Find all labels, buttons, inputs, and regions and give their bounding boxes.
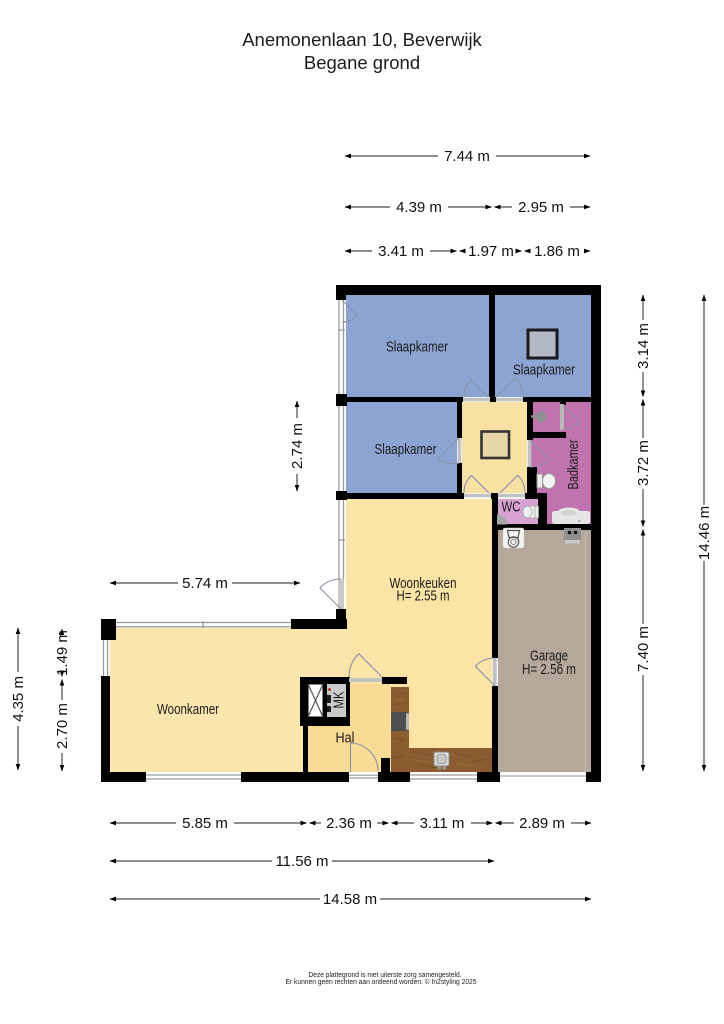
svg-text:Slaapkamer: Slaapkamer (513, 362, 575, 379)
svg-text:Er kunnen geen rechten aan ont: Er kunnen geen rechten aan ontleend word… (286, 978, 477, 986)
svg-text:Begane grond: Begane grond (304, 52, 420, 73)
svg-text:1.97 m: 1.97 m (468, 243, 514, 260)
svg-text:WC: WC (502, 499, 521, 516)
svg-text:H= 2.56 m: H= 2.56 m (522, 661, 576, 678)
svg-text:1.86 m: 1.86 m (534, 243, 580, 260)
svg-text:Hal: Hal (336, 730, 355, 747)
svg-text:MK: MK (331, 692, 348, 709)
svg-text:4.35 m: 4.35 m (10, 676, 27, 722)
svg-text:5.85 m: 5.85 m (182, 815, 228, 832)
svg-text:7.40 m: 7.40 m (635, 626, 652, 672)
svg-text:2.89 m: 2.89 m (519, 815, 565, 832)
svg-text:5.74 m: 5.74 m (182, 575, 228, 592)
svg-text:Badkamer: Badkamer (565, 440, 582, 490)
svg-text:14.58 m: 14.58 m (323, 891, 377, 908)
svg-text:3.11 m: 3.11 m (420, 815, 465, 832)
svg-text:3.41 m: 3.41 m (378, 243, 424, 260)
svg-text:Woonkamer: Woonkamer (157, 701, 219, 718)
svg-text:H= 2.55 m: H= 2.55 m (397, 588, 450, 605)
svg-text:Slaapkamer: Slaapkamer (375, 441, 437, 458)
svg-text:3.14 m: 3.14 m (635, 323, 652, 369)
svg-text:2.36 m: 2.36 m (326, 815, 372, 832)
svg-text:Slaapkamer: Slaapkamer (386, 339, 448, 356)
svg-text:2.70 m: 2.70 m (54, 703, 71, 749)
svg-text:2.74 m: 2.74 m (289, 423, 306, 469)
svg-text:3.72 m: 3.72 m (635, 440, 652, 486)
svg-text:4.39 m: 4.39 m (396, 199, 442, 216)
svg-text:11.56 m: 11.56 m (275, 853, 328, 870)
svg-text:Anemonenlaan 10, Beverwijk: Anemonenlaan 10, Beverwijk (242, 29, 482, 50)
svg-text:2.95 m: 2.95 m (518, 199, 564, 216)
svg-text:14.46 m: 14.46 m (696, 506, 713, 560)
svg-text:1.49 m: 1.49 m (54, 630, 71, 676)
svg-text:7.44 m: 7.44 m (444, 148, 490, 165)
svg-text:Deze plattegrond is met uiters: Deze plattegrond is met uiterste zorg sa… (309, 972, 462, 979)
